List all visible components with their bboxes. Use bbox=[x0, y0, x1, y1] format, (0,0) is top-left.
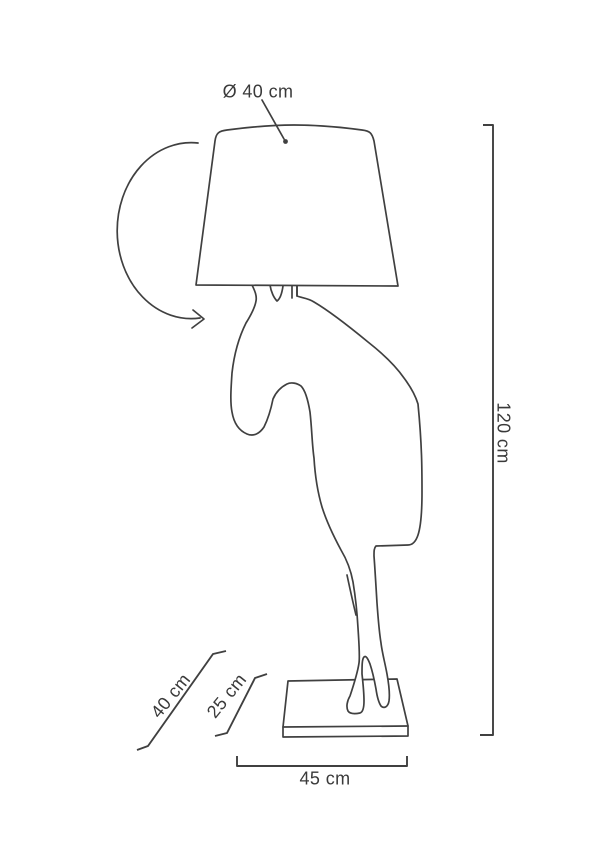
horse-silhouette-shape bbox=[231, 285, 422, 714]
height-dimension-line bbox=[480, 125, 493, 735]
leader-dot bbox=[283, 139, 288, 144]
total-height-label: 120 cm bbox=[493, 402, 514, 463]
rotation-arrow-icon bbox=[117, 143, 204, 328]
product-dimension-diagram: Ø 40 cm 120 cm 45 cm 40 cm 25 cm bbox=[0, 0, 600, 848]
shade-diameter-label: Ø 40 cm bbox=[223, 82, 294, 103]
base-width-label: 45 cm bbox=[299, 769, 350, 790]
lampshade-shape bbox=[196, 125, 398, 286]
base-width-dimension-line bbox=[237, 756, 407, 766]
